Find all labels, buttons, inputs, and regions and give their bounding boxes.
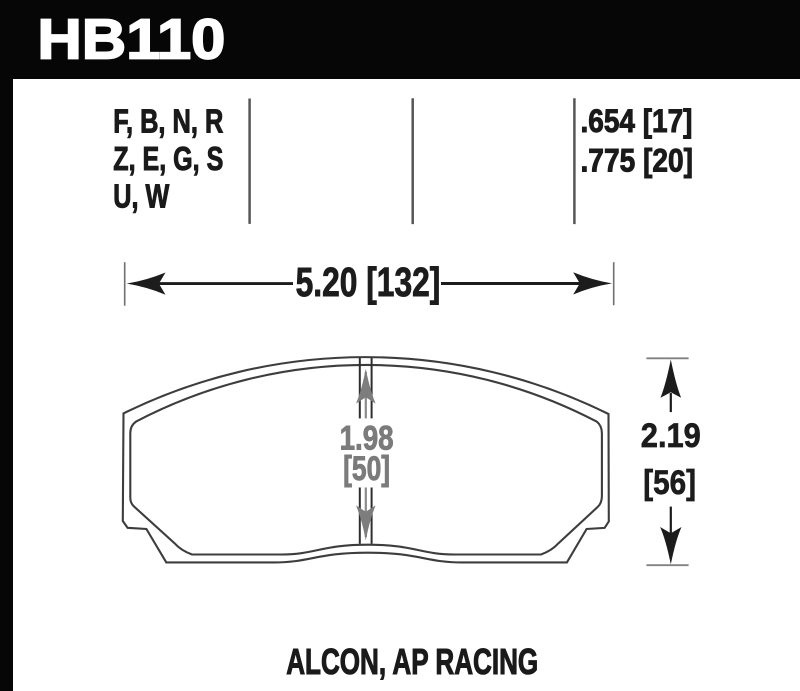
- svg-text:F, B, N, R: F, B, N, R: [113, 102, 223, 139]
- svg-text:U, W: U, W: [113, 178, 170, 215]
- svg-text:Z, E, G, S: Z, E, G, S: [113, 140, 223, 177]
- svg-text:ALCON, AP RACING: ALCON, AP RACING: [286, 641, 538, 682]
- svg-text:2.19: 2.19: [641, 417, 701, 455]
- svg-text:HB110: HB110: [37, 8, 225, 72]
- svg-text:.775 [20]: .775 [20]: [581, 142, 694, 178]
- svg-text:5.20 [132]: 5.20 [132]: [296, 259, 441, 305]
- svg-text:.654 [17]: .654 [17]: [581, 103, 693, 139]
- svg-text:[50]: [50]: [343, 450, 390, 488]
- svg-text:[56]: [56]: [643, 464, 696, 502]
